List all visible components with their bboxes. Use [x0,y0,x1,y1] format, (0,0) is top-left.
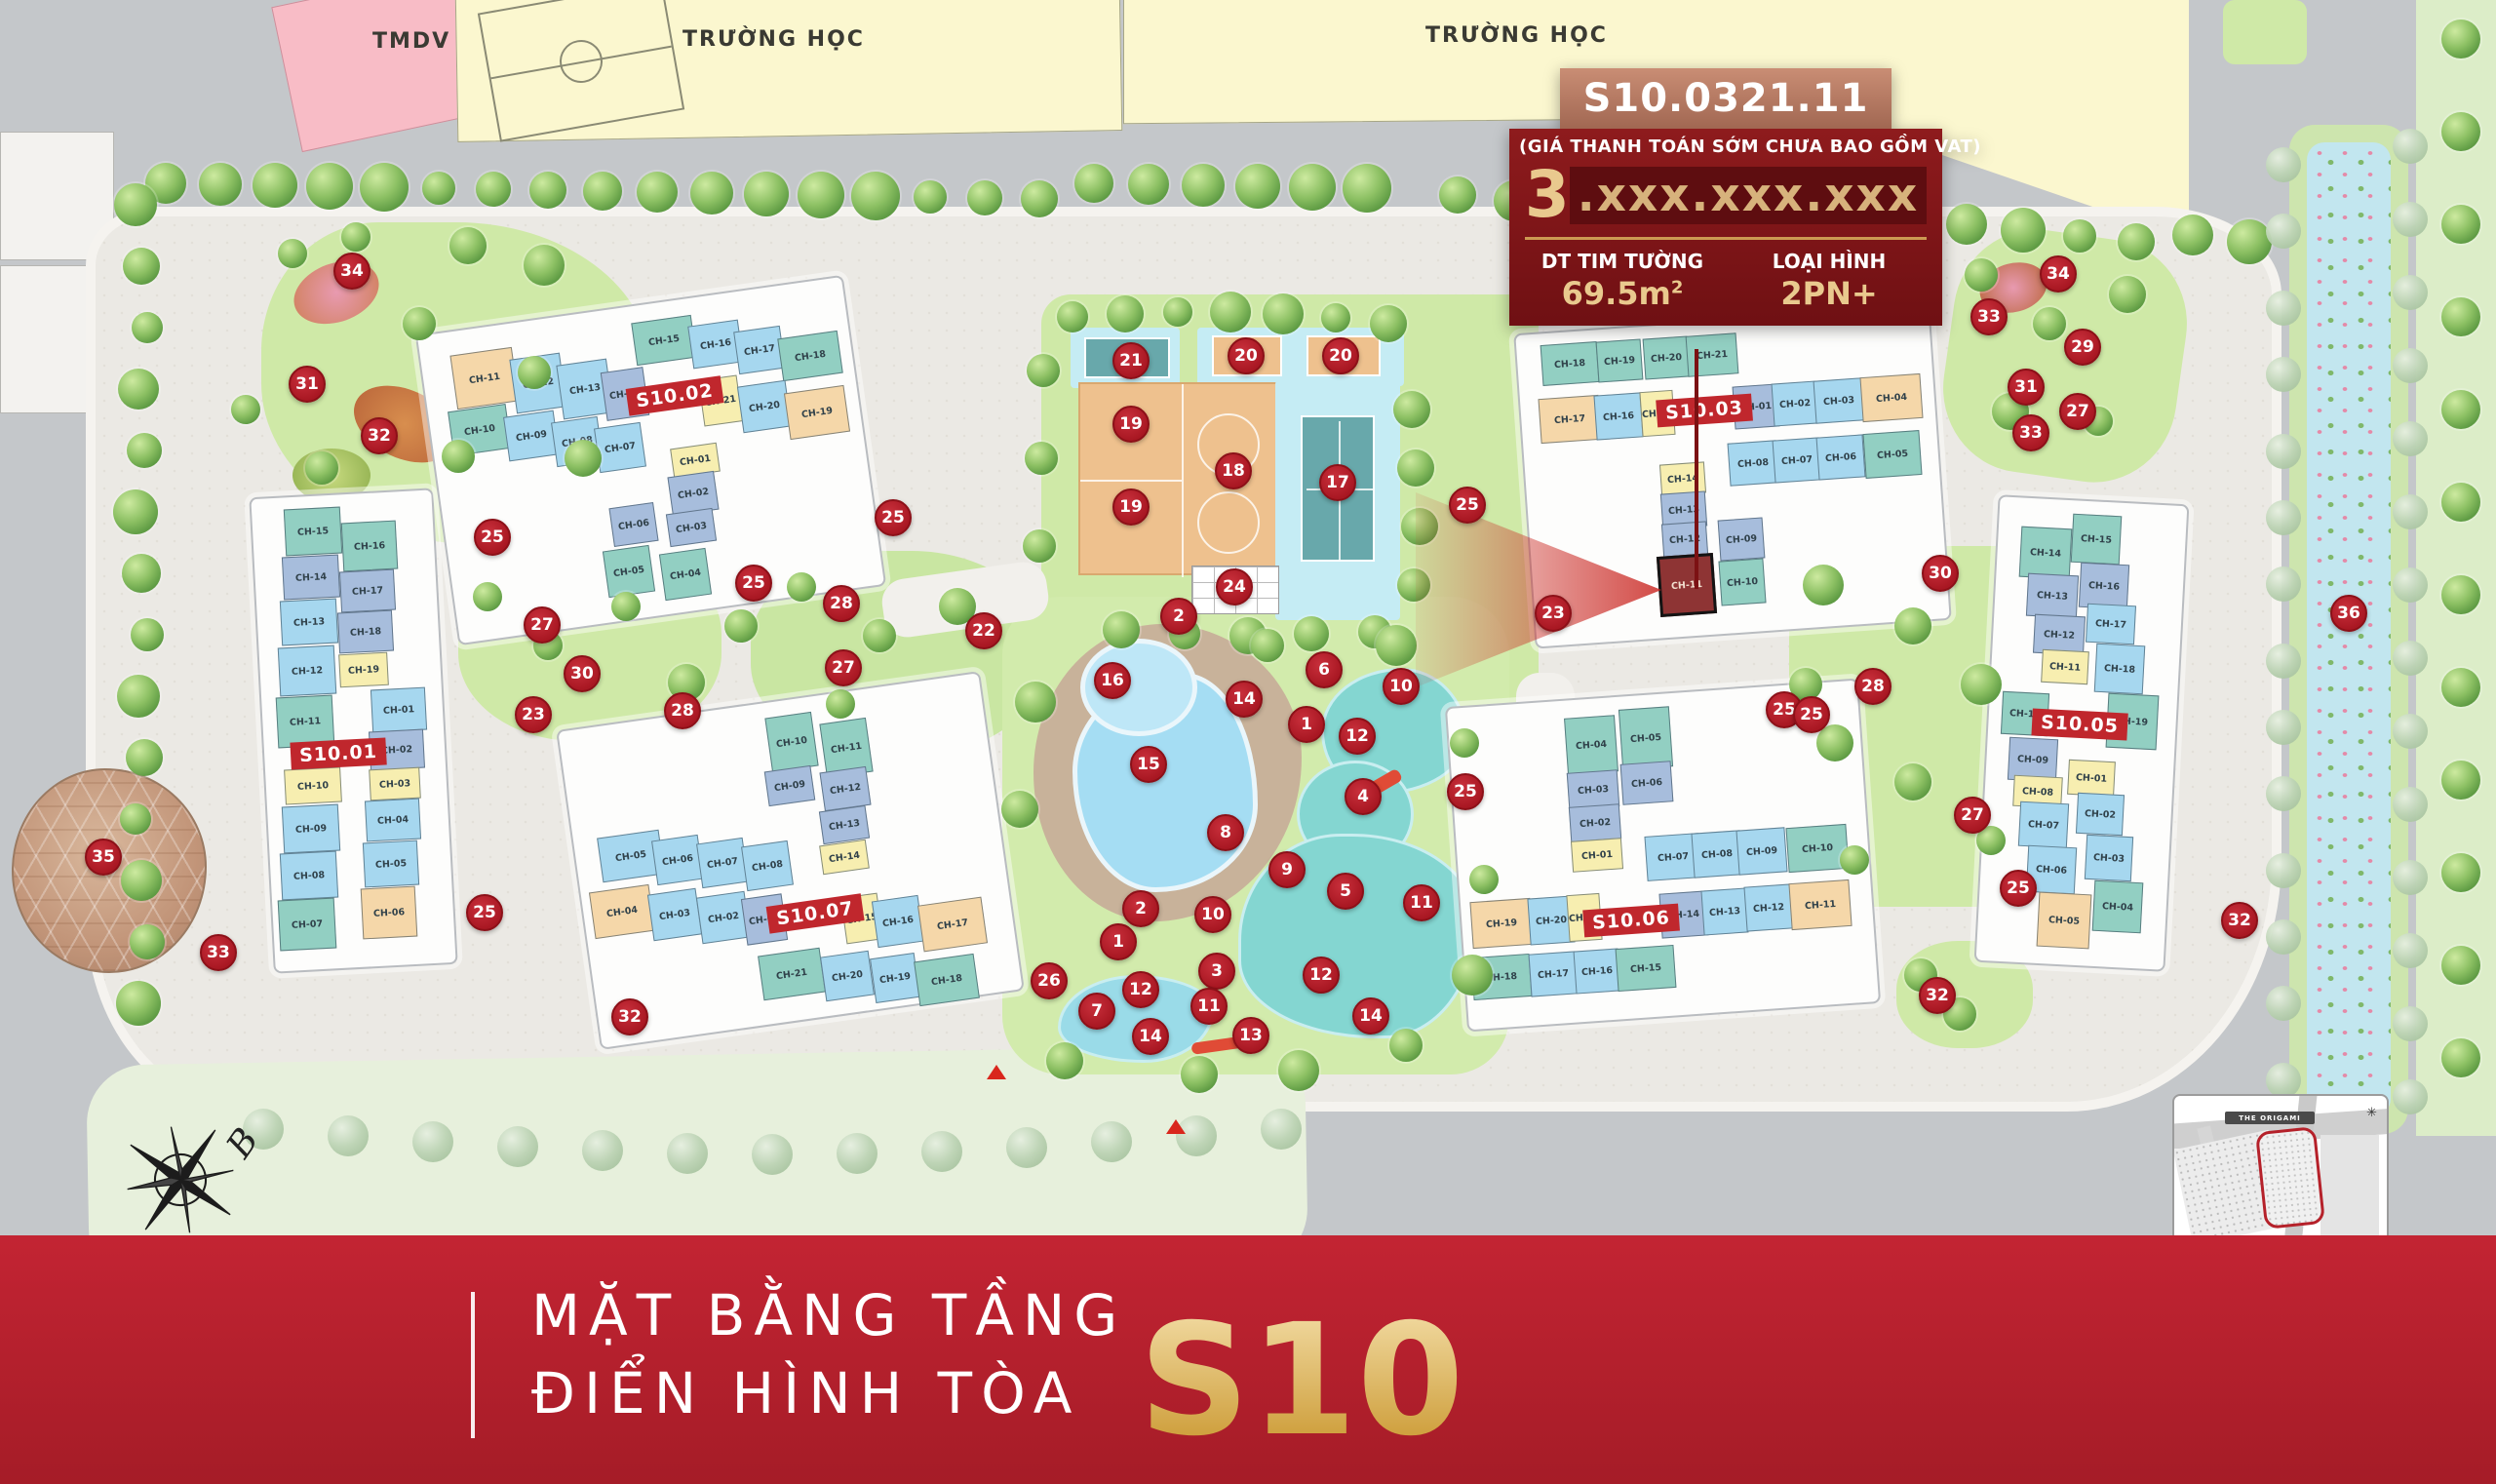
tree-icon [667,1133,708,1174]
unit-S10.07-CH-06[interactable]: CH-06 [651,835,704,885]
tree-icon [1182,164,1225,207]
tree-icon [851,172,900,220]
amenity-marker-33[interactable]: 33 [2012,414,2049,451]
amenity-marker-20[interactable]: 20 [1228,337,1265,374]
tree-icon [1894,763,1931,801]
tree-icon [1439,176,1476,214]
unit-S10.05-CH-05[interactable]: CH-05 [2037,892,2092,950]
tree-icon [2393,421,2428,456]
tree-icon [1450,728,1479,758]
amenity-marker-28[interactable]: 28 [1854,668,1891,705]
amenity-marker-27[interactable]: 27 [1954,797,1991,834]
unit-S10.03-CH-03[interactable]: CH-03 [1813,377,1865,423]
tree-icon [1057,301,1088,332]
tree-icon [524,245,565,286]
unit-S10.06-CH-04[interactable]: CH-04 [1564,715,1618,774]
unit-S10.06-CH-02[interactable]: CH-02 [1569,803,1621,842]
amenity-marker-21[interactable]: 21 [1112,342,1150,379]
tree-icon [2266,919,2301,955]
amenity-marker-3[interactable]: 3 [1198,953,1235,990]
unit-S10.03-CH-16[interactable]: CH-16 [1593,392,1643,440]
price-masked: .xxx.xxx.xxx [1570,167,1927,224]
unit-S10.06-CH-17[interactable]: CH-17 [1529,951,1579,996]
amenity-marker-12[interactable]: 12 [1303,957,1340,994]
tree-icon [422,172,455,205]
tree-icon [2266,1063,2301,1098]
tree-icon [113,489,158,534]
tree-icon [2441,205,2480,244]
banner-title-line1: MẶT BẰNG TẦNG [531,1282,1126,1348]
tree-icon [2266,434,2301,469]
tree-icon [1091,1121,1132,1162]
amenity-marker-32[interactable]: 32 [611,998,648,1035]
tree-icon [122,554,161,593]
amenity-marker-33[interactable]: 33 [200,934,237,971]
inset-red-boundary [2255,1126,2325,1230]
amenity-marker-19[interactable]: 19 [1112,488,1150,526]
unit-S10.05-CH-04[interactable]: CH-04 [2092,880,2144,934]
tree-icon [2441,668,2480,707]
unit-S10.02-CH-09[interactable]: CH-09 [503,410,560,462]
tree-icon [2393,129,2428,164]
amenity-marker-24[interactable]: 24 [1216,568,1253,605]
amenity-marker-35[interactable]: 35 [85,839,122,876]
tree-icon [1965,258,1998,292]
tree-icon [412,1121,453,1162]
tree-icon [1389,1029,1423,1062]
tree-icon [2266,776,2301,811]
tree-icon [1397,449,1434,487]
unit-S10.03-CH-19[interactable]: CH-19 [1596,338,1644,382]
amenity-marker-25[interactable]: 25 [735,565,772,602]
unit-S10.03-CH-06[interactable]: CH-06 [1816,434,1866,480]
tree-icon [1025,442,1058,475]
amenity-marker-14[interactable]: 14 [1352,997,1389,1035]
tree-icon [2393,202,2428,237]
unit-S10.01-CH-18[interactable]: CH-18 [337,610,394,654]
tree-icon [2441,575,2480,614]
tree-icon [1251,629,1284,662]
amenity-marker-34[interactable]: 34 [333,253,370,290]
unit-S10.06-CH-10[interactable]: CH-10 [1785,824,1849,873]
amenity-marker-34[interactable]: 34 [2040,255,2077,293]
unit-S10.03-CH-11[interactable]: CH-11 [1657,553,1717,617]
amenity-marker-23[interactable]: 23 [515,696,552,733]
tree-icon [305,451,338,485]
amenity-marker-30[interactable]: 30 [1922,555,1959,592]
tree-icon [120,803,151,835]
amenity-marker-16[interactable]: 16 [1094,662,1131,699]
basketball-courts [1078,382,1285,575]
tree-icon [2441,20,2480,59]
type-value: 2PN+ [1726,275,1932,312]
unit-S10.02-CH-11[interactable]: CH-11 [449,347,519,410]
unit-S10.02-CH-06[interactable]: CH-06 [608,502,658,547]
unit-S10.05-CH-14[interactable]: CH-14 [2019,527,2073,580]
tree-icon [2393,933,2428,968]
unit-S10.01-CH-05[interactable]: CH-05 [363,840,419,888]
unit-S10.07-CH-10[interactable]: CH-10 [764,712,818,772]
tree-icon [837,1133,877,1174]
amenity-marker-11[interactable]: 11 [1190,988,1228,1025]
unit-S10.05-CH-13[interactable]: CH-13 [2026,573,2079,619]
tree-icon [253,163,297,208]
building-label-S10.05: S10.05 [2031,708,2127,740]
unit-S10.03-CH-18[interactable]: CH-18 [1540,341,1600,386]
tree-icon [1235,164,1280,209]
amenity-marker-22[interactable]: 22 [965,612,1002,649]
tree-icon [2393,567,2428,603]
tree-icon [2393,1079,2428,1114]
tree-icon [2266,853,2301,888]
unit-S10.06-CH-08[interactable]: CH-08 [1691,830,1742,878]
amenity-marker-5[interactable]: 5 [1327,873,1364,910]
tree-icon [1803,565,1844,605]
amenity-marker-25[interactable]: 25 [1793,696,1830,733]
unit-S10.06-CH-12[interactable]: CH-12 [1743,883,1793,931]
unit-S10.01-CH-06[interactable]: CH-06 [361,886,418,940]
unit-S10.03-CH-20[interactable]: CH-20 [1643,335,1691,379]
unit-S10.01-CH-17[interactable]: CH-17 [339,569,396,613]
unit-S10.07-CH-09[interactable]: CH-09 [764,765,816,806]
tree-icon [127,433,162,468]
unit-S10.07-CH-18[interactable]: CH-18 [914,954,980,1006]
area-label: DT TIM TƯỜNG [1519,250,1726,273]
unit-S10.05-CH-16[interactable]: CH-16 [2079,563,2129,610]
amenity-marker-28[interactable]: 28 [664,692,701,729]
unit-S10.02-CH-20[interactable]: CH-20 [737,380,792,433]
tree-icon [2393,860,2428,895]
tree-icon [2441,297,2480,336]
gold-divider [1525,237,1927,240]
unit-S10.02-CH-03[interactable]: CH-03 [666,508,717,547]
unit-S10.03-CH-09[interactable]: CH-09 [1718,517,1766,561]
entrance-marker [1166,1119,1186,1134]
banner-divider [471,1292,475,1438]
unit-S10.07-CH-04[interactable]: CH-04 [589,884,655,939]
school-label-2: TRƯỜNG HỌC [1425,23,1608,48]
tree-icon [126,739,163,776]
amenity-marker-25[interactable]: 25 [1449,487,1486,524]
unit-S10.01-CH-01[interactable]: CH-01 [370,687,427,733]
tree-icon [2266,147,2301,182]
tree-icon [2001,208,2046,253]
amenity-marker-1[interactable]: 1 [1288,706,1325,743]
amenity-marker-30[interactable]: 30 [564,655,601,692]
tree-icon [2266,291,2301,326]
tree-icon [1946,204,1987,245]
amenity-marker-20[interactable]: 20 [1322,337,1359,374]
tree-icon [2441,112,2480,151]
unit-S10.02-CH-18[interactable]: CH-18 [777,331,843,381]
unit-S10.05-CH-17[interactable]: CH-17 [2086,604,2136,645]
unit-S10.03-CH-07[interactable]: CH-07 [1773,437,1822,483]
tree-icon [1046,1042,1083,1079]
unit-S10.06-CH-09[interactable]: CH-09 [1735,827,1787,875]
tree-icon [565,440,602,477]
amenity-marker-2[interactable]: 2 [1160,598,1197,635]
amenity-marker-23[interactable]: 23 [1535,595,1572,632]
tree-icon [2063,219,2096,253]
tree-icon [2441,761,2480,800]
unit-S10.03-CH-17[interactable]: CH-17 [1538,395,1601,444]
unit-S10.01-CH-04[interactable]: CH-04 [365,799,421,842]
unit-S10.06-CH-01[interactable]: CH-01 [1571,838,1623,873]
amenity-marker-25[interactable]: 25 [875,499,912,536]
amenity-marker-36[interactable]: 36 [2330,595,2367,632]
tree-icon [306,163,353,210]
tree-icon [118,369,159,410]
tree-icon [1107,295,1144,332]
tree-icon [637,172,678,213]
tree-icon [497,1126,538,1167]
unit-S10.03-CH-08[interactable]: CH-08 [1728,440,1779,486]
tree-icon [2109,276,2146,313]
unit-S10.06-CH-11[interactable]: CH-11 [1788,879,1852,930]
tree-icon [1894,607,1931,644]
unit-S10.02-CH-05[interactable]: CH-05 [603,545,655,598]
amenity-marker-26[interactable]: 26 [1031,962,1068,999]
tree-icon [116,981,161,1026]
unit-S10.05-CH-15[interactable]: CH-15 [2071,514,2123,566]
tree-icon [529,172,566,209]
amenity-marker-25[interactable]: 25 [1447,773,1484,810]
tree-icon [1321,303,1350,332]
unit-S10.02-CH-07[interactable]: CH-07 [594,422,646,473]
inset-compass-icon: ✳ [2366,1106,2377,1120]
unit-S10.03-CH-10[interactable]: CH-10 [1718,558,1766,605]
tree-icon [1393,391,1430,428]
tmdv-block [271,0,483,152]
unit-S10.01-CH-19[interactable]: CH-19 [338,652,389,688]
tree-icon [199,163,242,206]
unit-S10.01-CH-03[interactable]: CH-03 [369,767,421,801]
tree-icon [2393,714,2428,749]
unit-S10.03-CH-05[interactable]: CH-05 [1862,430,1922,479]
unit-S10.07-CH-03[interactable]: CH-03 [647,888,702,941]
tree-icon [724,609,758,643]
tree-icon [1961,664,2002,705]
unit-S10.01-CH-10[interactable]: CH-10 [284,767,342,805]
tree-icon [114,183,157,226]
unit-S10.05-CH-18[interactable]: CH-18 [2094,644,2146,695]
amenity-marker-31[interactable]: 31 [289,366,326,403]
tree-icon [2441,390,2480,429]
amenity-marker-14[interactable]: 14 [1226,681,1263,718]
amenity-marker-32[interactable]: 32 [361,417,398,454]
tree-icon [2393,641,2428,676]
amenity-marker-18[interactable]: 18 [1215,452,1252,489]
amenity-marker-6[interactable]: 6 [1306,651,1343,688]
amenity-marker-12[interactable]: 12 [1122,971,1159,1008]
unit-S10.07-CH-08[interactable]: CH-08 [741,840,794,891]
tree-icon [787,572,816,602]
banner-title-line2: ĐIỂN HÌNH TÒA [531,1360,1080,1426]
unit-S10.01-CH-12[interactable]: CH-12 [278,645,337,697]
tree-icon [2441,946,2480,985]
unit-S10.06-CH-15[interactable]: CH-15 [1616,945,1677,992]
price-lead: 3 [1525,163,1570,227]
building-label-S10.01: S10.01 [290,737,386,769]
tree-icon [2266,986,2301,1021]
amenity-marker-10[interactable]: 10 [1383,668,1420,705]
tree-icon [2441,1038,2480,1077]
tree-icon [1021,180,1058,217]
unit-code-badge: S10.0321.11 [1560,68,1891,129]
amenity-marker-25[interactable]: 25 [474,519,511,556]
amenity-marker-1[interactable]: 1 [1100,923,1137,960]
amenity-marker-27[interactable]: 27 [825,649,862,686]
tree-icon [2266,566,2301,602]
tree-icon [1376,625,1417,666]
amenity-marker-32[interactable]: 32 [1919,977,1956,1014]
amenity-marker-12[interactable]: 12 [1339,718,1376,755]
tree-icon [2393,275,2428,310]
amenity-marker-27[interactable]: 27 [2059,393,2096,430]
tree-icon [583,172,622,211]
unit-S10.01-CH-08[interactable]: CH-08 [280,851,338,901]
unit-S10.07-CH-13[interactable]: CH-13 [819,805,870,844]
tree-icon [328,1115,369,1156]
amenity-marker-10[interactable]: 10 [1194,896,1231,933]
tree-icon [1181,1056,1218,1093]
school-label-1: TRƯỜNG HỌC [682,27,865,52]
unit-S10.07-CH-16[interactable]: CH-16 [872,895,924,948]
tree-icon [2393,787,2428,822]
unit-S10.06-CH-13[interactable]: CH-13 [1700,887,1748,935]
unit-S10.05-CH-07[interactable]: CH-07 [2018,801,2069,849]
tree-icon [690,172,733,215]
amenity-marker-8[interactable]: 8 [1207,814,1244,851]
inset-title-bar: THE ORIGAMI [2225,1112,2315,1124]
type-label: LOẠI HÌNH [1726,250,1932,273]
unit-S10.05-CH-02[interactable]: CH-02 [2076,793,2125,836]
unit-S10.05-CH-01[interactable]: CH-01 [2067,760,2116,797]
unit-S10.07-CH-21[interactable]: CH-21 [758,948,826,1000]
amenity-marker-7[interactable]: 7 [1078,993,1115,1030]
tree-icon [2266,500,2301,535]
tree-icon [1074,164,1113,203]
tree-icon [476,172,511,207]
tree-icon [231,395,260,424]
unit-S10.06-CH-16[interactable]: CH-16 [1574,948,1621,994]
amenity-marker-11[interactable]: 11 [1403,884,1440,921]
unit-S10.03-CH-21[interactable]: CH-21 [1686,332,1739,377]
tree-icon [1469,865,1499,894]
unit-S10.03-CH-02[interactable]: CH-02 [1772,380,1819,426]
amenity-marker-15[interactable]: 15 [1130,746,1167,783]
unit-S10.07-CH-19[interactable]: CH-19 [870,953,920,1003]
tree-icon [2441,483,2480,522]
unit-S10.06-CH-06[interactable]: CH-06 [1620,761,1674,805]
tree-icon [132,312,163,343]
unit-S10.01-CH-15[interactable]: CH-15 [284,507,342,557]
amenity-marker-9[interactable]: 9 [1268,851,1306,888]
tree-icon [826,689,855,719]
corner-green [2223,0,2307,64]
unit-S10.02-CH-15[interactable]: CH-15 [631,315,697,366]
unit-S10.07-CH-17[interactable]: CH-17 [917,897,988,953]
amenity-marker-25[interactable]: 25 [2000,870,2037,907]
tree-icon [1294,616,1329,651]
unit-S10.01-CH-09[interactable]: CH-09 [282,804,340,854]
amenity-marker-31[interactable]: 31 [2008,369,2045,406]
amenity-marker-28[interactable]: 28 [823,585,860,622]
tree-icon [449,227,487,264]
tree-icon [2266,710,2301,745]
unit-S10.06-CH-19[interactable]: CH-19 [1469,898,1533,949]
amenity-marker-32[interactable]: 32 [2221,902,2258,939]
amenity-marker-25[interactable]: 25 [466,894,503,931]
amenity-marker-17[interactable]: 17 [1319,464,1356,501]
unit-S10.01-CH-14[interactable]: CH-14 [282,555,340,601]
amenity-marker-29[interactable]: 29 [2064,329,2101,366]
tree-icon [752,1134,793,1175]
tree-icon [1027,354,1060,387]
tree-icon [121,860,162,901]
unit-S10.02-CH-17[interactable]: CH-17 [733,326,786,374]
tree-icon [1128,164,1169,205]
amenity-marker-27[interactable]: 27 [524,606,561,644]
callout-connector-line [1695,349,1698,589]
tree-icon [914,180,947,214]
unit-S10.02-CH-04[interactable]: CH-04 [659,548,712,601]
unit-S10.05-CH-11[interactable]: CH-11 [2041,649,2089,684]
tree-icon [117,675,160,718]
master-plan-canvas: TMDV TRƯỜNG HỌC TRƯỜNG HỌC [0,0,2496,1484]
unit-S10.05-CH-03[interactable]: CH-03 [2085,835,2133,881]
tree-icon [582,1130,623,1171]
area-value: 69.5m2 [1519,275,1726,312]
tree-icon [1261,1109,1302,1150]
unit-S10.03-CH-12[interactable]: CH-12 [1661,521,1708,557]
unit-S10.01-CH-13[interactable]: CH-13 [280,599,338,646]
tree-icon [2393,1006,2428,1041]
tree-icon [123,248,160,285]
unit-S10.07-CH-20[interactable]: CH-20 [820,951,875,1002]
amenity-marker-33[interactable]: 33 [1970,298,2008,335]
tree-icon [1343,164,1391,213]
tree-icon [442,440,475,473]
amenity-marker-4[interactable]: 4 [1345,778,1382,815]
unit-S10.02-CH-19[interactable]: CH-19 [784,385,850,440]
tree-icon [131,618,164,651]
unit-S10.07-CH-07[interactable]: CH-07 [696,838,749,888]
unit-S10.01-CH-07[interactable]: CH-07 [278,898,337,952]
tree-icon [1001,791,1038,828]
banner-tower-code: S10 [1139,1304,1464,1458]
price-row: 3 .xxx.xxx.xxx [1519,163,1932,227]
amenity-marker-2[interactable]: 2 [1122,890,1159,927]
unit-callout: S10.0321.11 (GIÁ THANH TOÁN SỚM CHƯA BAO… [1509,68,1942,326]
tree-icon [360,163,409,212]
unit-S10.01-CH-16[interactable]: CH-16 [341,521,399,572]
tree-icon [1278,1050,1319,1091]
tree-icon [1263,293,1304,334]
tree-icon [2393,494,2428,529]
tree-icon [2266,357,2301,392]
tree-icon [2266,644,2301,679]
left-building-footprint [0,265,99,413]
tree-icon [798,172,844,218]
tree-icon [1015,682,1056,722]
amenity-marker-13[interactable]: 13 [1232,1017,1269,1054]
tree-icon [130,924,165,959]
unit-S10.03-CH-04[interactable]: CH-04 [1859,373,1923,422]
amenity-marker-14[interactable]: 14 [1132,1018,1169,1055]
amenity-marker-19[interactable]: 19 [1112,406,1150,443]
tree-icon [2393,348,2428,383]
